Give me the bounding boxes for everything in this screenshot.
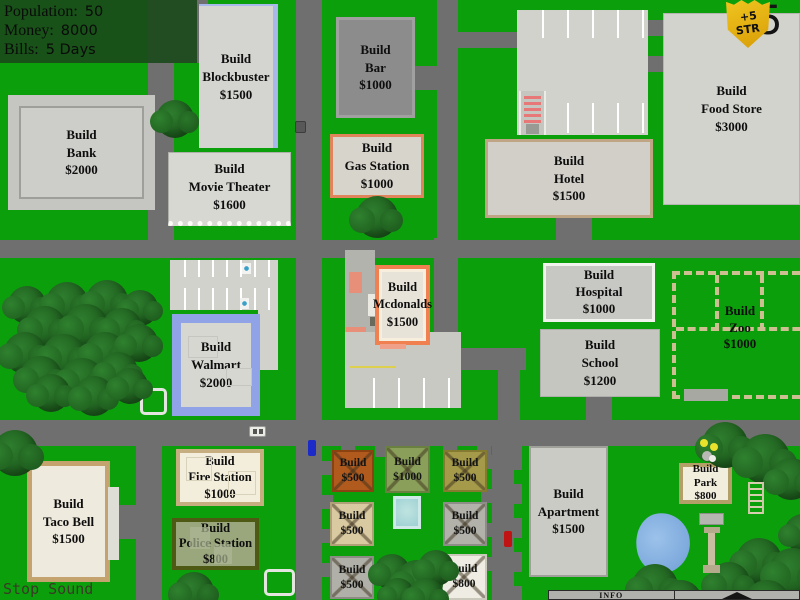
label-line: $1500 [52,530,85,548]
label-line: Build [725,303,755,320]
population-row: Population: 50 [4,2,197,21]
road [646,20,664,36]
label-line: Build [221,50,251,68]
road [136,420,162,600]
label-line: $1600 [213,196,246,214]
parking-lines [172,288,275,310]
driveway [514,470,524,484]
build-plot-3[interactable]: Build $500 [443,450,487,492]
bills-value: 5 Days [46,42,96,58]
label-line: Build [452,456,479,471]
label-line: Build [585,336,615,354]
label-line: $500 [341,524,364,539]
flower-icon [710,443,718,451]
info-bar[interactable]: INFO [548,590,800,600]
label-line: Build [339,509,366,524]
build-park-plot[interactable]: Build Park $800 [679,463,732,504]
label-line: Build [716,82,746,100]
build-taco-bell-plot[interactable]: Build Taco Bell $1500 [27,461,110,582]
tree-icon [174,572,214,600]
parking-lines [172,260,275,277]
label-line: $1500 [553,187,586,205]
label-line: Gas Station [345,157,410,175]
stairs-base [526,124,539,134]
build-gas-station-plot[interactable]: Build Gas Station $1000 [330,134,424,198]
label-line: Hotel [554,170,584,188]
info-expand-button[interactable] [675,591,800,599]
money-label: Money: [4,22,54,40]
build-blockbuster-plot[interactable]: Build Blockbuster $1500 [199,4,278,148]
flower-icon [709,455,716,462]
bills-row: Bills: 5 Days [4,40,197,59]
label-line: $500 [454,471,477,486]
tree-icon [112,368,148,404]
money-row: Money: 8000 [4,21,197,40]
label-line: Blockbuster [202,68,269,86]
label-line: Build [339,563,366,578]
label-line: $1200 [584,372,617,390]
label-line: Taco Bell [43,513,94,531]
label-line: $1000 [724,336,757,353]
car-icon [308,440,316,456]
parking-yellow-line [350,366,396,368]
swimming-pool [393,496,421,529]
shopping-cart-icon [242,263,251,274]
roof-detail [186,457,212,481]
bills-label: Bills: [4,41,39,59]
stop-sound-button[interactable]: Stop Sound [3,580,93,598]
label-line: Bar [365,59,386,77]
label-line: Apartment [538,503,599,521]
label-line: Build [452,509,479,524]
label-line: $3000 [715,118,748,136]
label-line: $800 [695,490,717,504]
roof-detail [188,336,218,358]
build-plot-4[interactable]: Build $500 [330,502,374,546]
build-hotel-plot[interactable]: Build Hotel $1500 [485,139,653,218]
label-line: Build [66,126,96,144]
road [498,348,520,424]
label-line: Bank [67,144,97,162]
label-line: Mcdonalds [373,296,432,313]
label-line: Build [584,267,614,284]
label-line: Build [340,456,367,471]
label-line: Build [553,485,583,503]
population-label: Population: [4,3,78,21]
drive-through-window [349,272,362,293]
road [0,240,800,258]
drive-through-window [108,487,119,560]
roof-detail [190,527,210,549]
driveway [514,572,524,586]
city-map: Build Bank $2000 Build Blockbuster $1500… [0,0,800,600]
driveway [514,504,524,518]
road [556,216,592,242]
seesaw-end [704,527,720,533]
bench [699,513,724,525]
build-plot-1[interactable]: Build $500 [332,450,374,492]
build-mcdonalds-plot[interactable]: Build Mcdonalds $1500 [375,265,430,345]
population-value: 50 [85,4,103,20]
zoo-entrance-path [684,389,728,401]
build-zoo-plot[interactable]: Build Zoo $1000 [700,299,780,357]
tree-icon [784,514,800,552]
road [296,0,322,600]
label-line: $1500 [387,314,418,331]
roof-detail [228,471,256,495]
label-line: $500 [342,471,365,486]
build-movie-theater-plot[interactable]: Build Movie Theater $1600 [168,152,291,226]
label-line: $1500 [552,520,585,538]
label-line: $500 [341,578,364,593]
build-hospital-plot[interactable]: Build Hospital $1000 [543,263,655,322]
build-bar-plot[interactable]: Build Bar $1000 [336,17,415,118]
climbing-frame [748,482,764,514]
info-button[interactable]: INFO [549,591,675,599]
label-line: $1500 [220,86,253,104]
road [586,395,612,421]
tree-icon [770,458,800,500]
car-icon [295,121,306,133]
build-school-plot[interactable]: Build School $1200 [540,329,660,397]
label-line: Park [694,477,717,491]
build-plot-5[interactable]: Build $500 [443,502,487,546]
label-line: Build [394,455,421,470]
stats-panel: Population: 50 Money: 8000 Bills: 5 Days [0,0,197,63]
label-line: Movie Theater [189,178,271,196]
label-line: Build [214,160,244,178]
build-plot-2[interactable]: Build $1000 [385,446,430,493]
label-line: Build [554,152,584,170]
road [457,32,519,48]
label-line: Zoo [729,320,751,337]
label-line: $500 [454,524,477,539]
car-icon [504,531,512,547]
chevron-up-icon [722,592,752,599]
build-walmart-plot[interactable]: Build Walmart $2000 [172,314,260,416]
flower-icon [700,439,708,447]
label-line: Hospital [576,284,623,301]
tree-icon [32,374,70,412]
label-line: Build [360,41,390,59]
label-line: School [582,354,619,372]
label-line: $1000 [359,76,392,94]
info-label: INFO [599,591,623,600]
roof-detail [226,368,252,386]
empty-plot[interactable] [264,569,295,596]
road [415,66,439,90]
label-line: $800 [453,577,476,592]
label-line: Food Store [701,100,762,118]
awning [380,344,406,349]
parking-lines [519,10,648,38]
label-line: Build [388,279,417,296]
build-bank-plot[interactable]: Build Bank $2000 [8,95,155,210]
money-value: 8000 [61,23,98,39]
label-line: $1000 [583,301,616,318]
build-apartment-plot[interactable]: Build Apartment $1500 [529,446,608,577]
shopping-cart-icon [240,298,249,309]
label-line: $1000 [361,175,394,193]
road [437,0,458,240]
road [646,56,664,72]
roof-detail [214,544,232,564]
driveway [514,538,524,552]
label-line: Build [53,495,83,513]
drive-through-bar [346,327,366,332]
stairs [524,96,541,124]
label-line: $2000 [65,161,98,179]
seesaw-pole [708,529,715,569]
tree-icon [0,430,38,476]
label-line: $1000 [393,470,422,485]
car-icon [249,426,266,437]
parking-lines [350,378,458,408]
road [0,420,800,446]
seesaw-end [703,565,720,573]
badge-stat: STR [735,22,760,38]
tree-icon [356,196,398,238]
label-line: Build [362,139,392,157]
tree-icon [156,100,194,138]
